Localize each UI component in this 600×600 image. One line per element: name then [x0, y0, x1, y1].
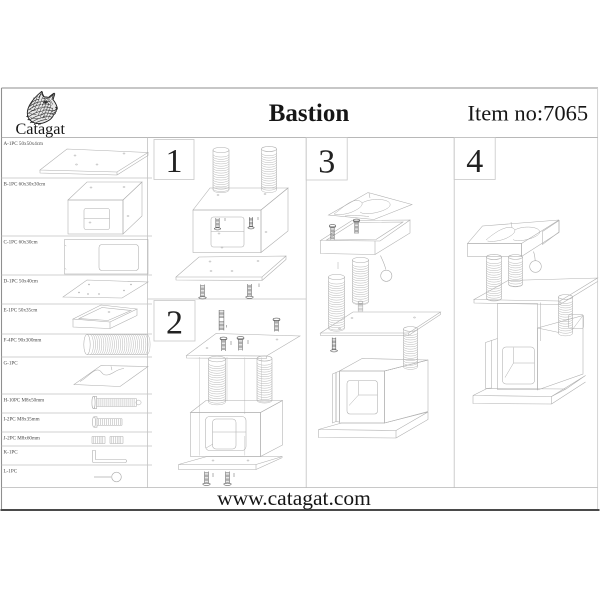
svg-text:B-1PC 60x30x30cm: B-1PC 60x30x30cm — [4, 181, 46, 187]
svg-text:C-1PC 60x30cm: C-1PC 60x30cm — [4, 239, 38, 245]
svg-text:E-1PC 50x35cm: E-1PC 50x35cm — [4, 307, 38, 313]
svg-text:H-10PC M8x50mm: H-10PC M8x50mm — [4, 397, 45, 403]
svg-text:K-1PC: K-1PC — [4, 449, 19, 455]
svg-text:3: 3 — [318, 144, 335, 181]
svg-text:Catagat: Catagat — [16, 120, 66, 138]
svg-text:L-1PC: L-1PC — [4, 468, 18, 474]
svg-text:Item no:7065: Item no:7065 — [468, 101, 589, 126]
svg-text:G-1PC: G-1PC — [4, 360, 19, 366]
svg-text:www.catagat.com: www.catagat.com — [217, 486, 371, 510]
svg-text:F-4PC 90x300mm: F-4PC 90x300mm — [4, 337, 42, 343]
svg-text:4: 4 — [466, 143, 483, 180]
svg-text:A-1PC 50x50x4cm: A-1PC 50x50x4cm — [4, 141, 44, 147]
svg-text:2: 2 — [166, 305, 183, 342]
svg-text:D-1PC 50x40cm: D-1PC 50x40cm — [4, 278, 38, 284]
svg-text:1: 1 — [166, 143, 183, 180]
svg-text:Bastion: Bastion — [269, 100, 350, 127]
svg-text:J-2PC M8x60mm: J-2PC M8x60mm — [4, 435, 40, 441]
svg-text:I-2PC M8x35mm: I-2PC M8x35mm — [4, 416, 40, 422]
